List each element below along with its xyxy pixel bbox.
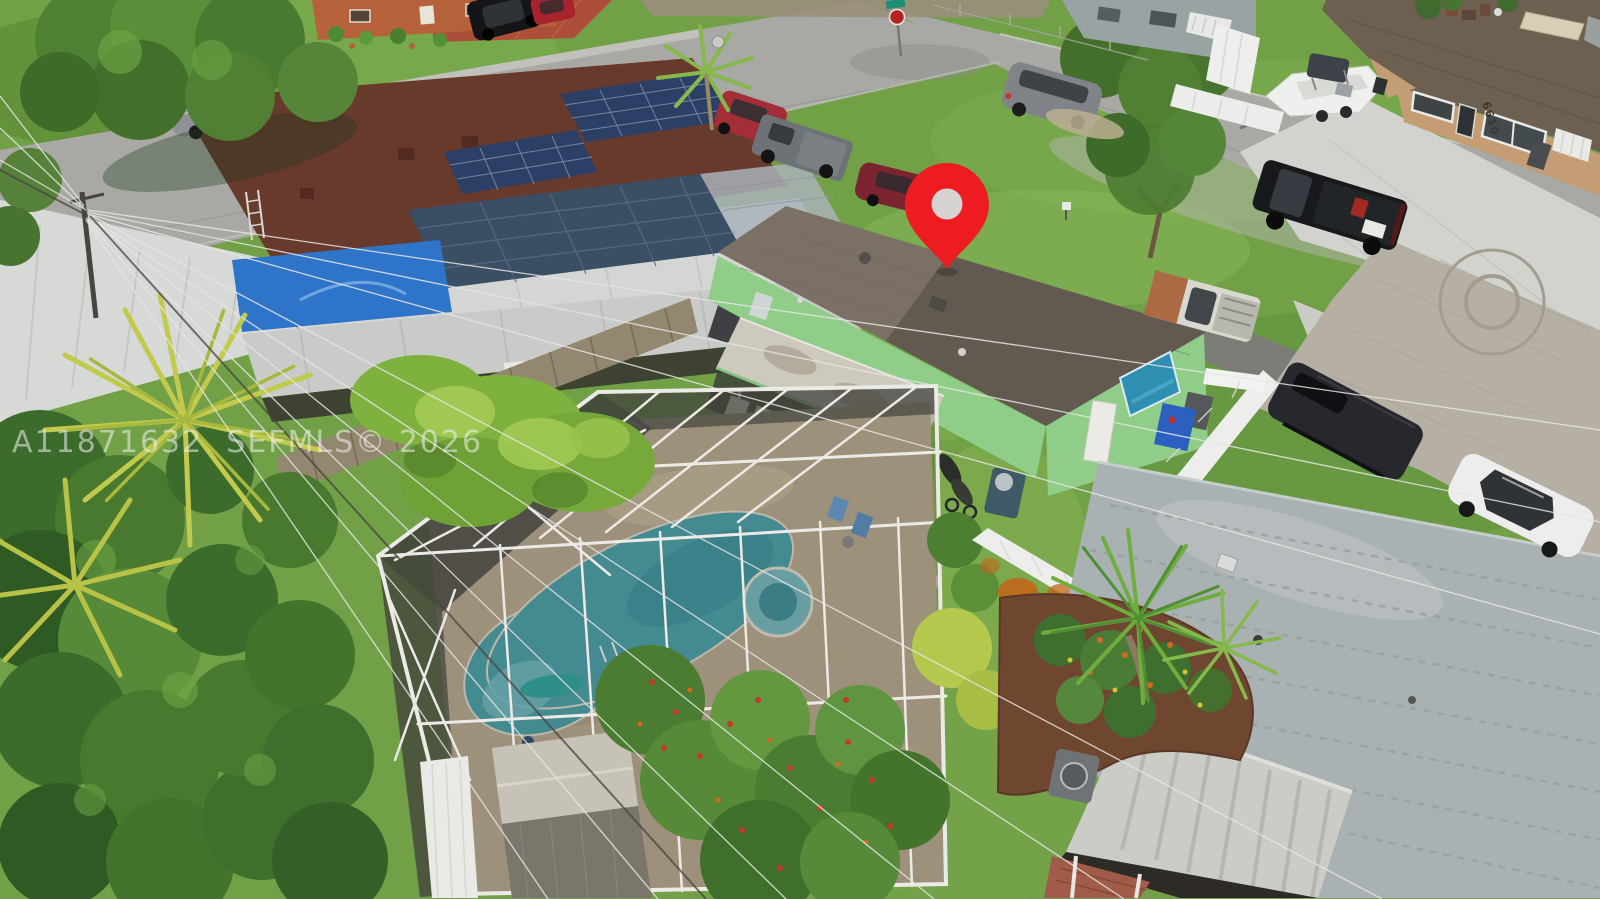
pin-hole: [932, 189, 963, 220]
watermark: A11871632 SEFMLS© 2026: [12, 425, 483, 460]
aerial-photo: 6610: [0, 0, 1600, 899]
dirt-strip: [640, 0, 1050, 18]
satellite-dish: [712, 36, 724, 48]
front-door: [1456, 104, 1476, 138]
